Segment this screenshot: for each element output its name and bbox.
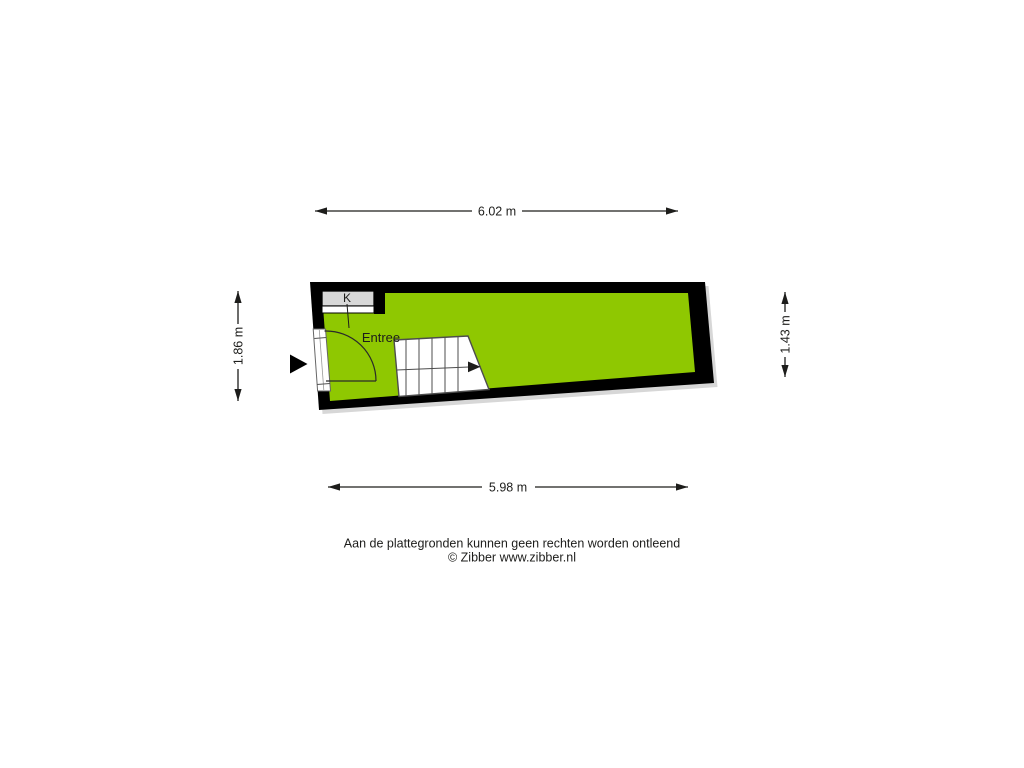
closet-label: K (343, 291, 351, 305)
entry-arrow-icon (290, 355, 308, 374)
arrow-up-icon (234, 291, 241, 303)
footer-copyright: © Zibber www.zibber.nl (448, 551, 576, 565)
arrow-up-icon (781, 292, 788, 304)
dimension-left: 1.86 m (232, 291, 246, 401)
arrow-right-icon (666, 207, 678, 214)
dimension-right: 1.43 m (779, 292, 793, 377)
floorplan-canvas: 6.02 m 5.98 m 1.86 m 1.43 m (0, 0, 1024, 768)
room-entree: K Entree (290, 282, 718, 414)
arrow-down-icon (781, 365, 788, 377)
floorplan-page: 6.02 m 5.98 m 1.86 m 1.43 m (0, 0, 1024, 768)
dimension-top: 6.02 m (315, 205, 678, 219)
dimension-label-top: 6.02 m (478, 205, 516, 219)
footer: Aan de plattegronden kunnen geen rechten… (344, 537, 680, 565)
wall-stub (374, 282, 385, 314)
arrow-left-icon (328, 483, 340, 490)
dimension-label-bottom: 5.98 m (489, 481, 527, 495)
arrow-right-icon (676, 483, 688, 490)
dimension-bottom: 5.98 m (328, 481, 688, 495)
room-label: Entree (362, 330, 400, 345)
arrow-down-icon (234, 389, 241, 401)
dimension-label-left: 1.86 m (232, 327, 246, 365)
arrow-left-icon (315, 207, 327, 214)
footer-disclaimer: Aan de plattegronden kunnen geen rechten… (344, 537, 680, 551)
dimension-label-right: 1.43 m (779, 315, 793, 353)
